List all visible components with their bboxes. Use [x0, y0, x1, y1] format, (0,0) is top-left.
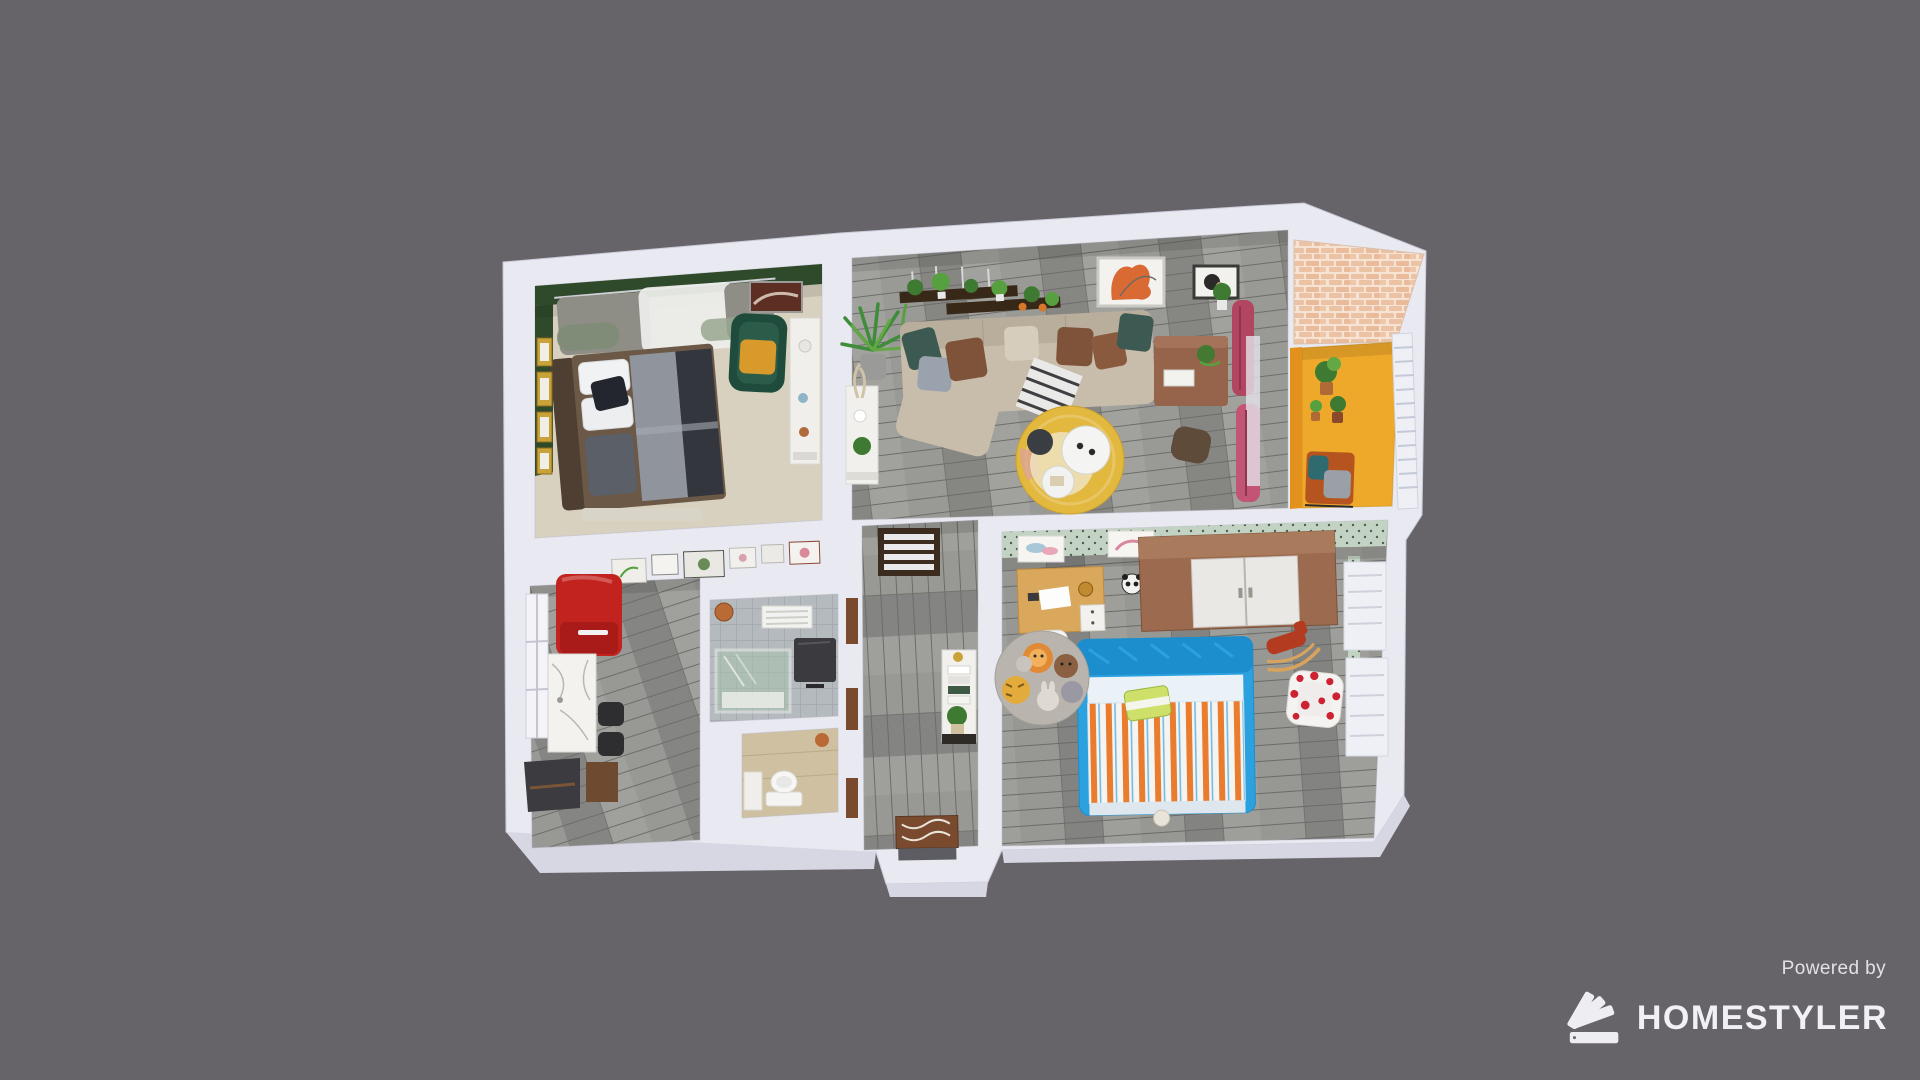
curtain-green-fold	[556, 322, 620, 352]
table-plant	[1197, 345, 1215, 363]
marble-counter	[548, 654, 596, 752]
shoe-cabinet	[878, 528, 940, 576]
living-room	[842, 230, 1288, 520]
green-armchair	[728, 313, 788, 394]
copper-pot-wc	[815, 733, 829, 747]
doorway-jamb-1	[846, 598, 858, 644]
kitchen-window	[526, 594, 548, 738]
round-yellow-rug	[1016, 406, 1124, 514]
wood-wardrobe	[1138, 531, 1337, 632]
bar-stool-2	[598, 732, 624, 756]
towel-rack	[762, 606, 812, 628]
dark-storage-unit	[794, 638, 836, 688]
brand-name: HOMESTYLER	[1637, 1001, 1888, 1035]
red-refrigerator	[556, 574, 622, 656]
wood-side-table	[1154, 336, 1228, 406]
pillow-brown-2	[1056, 327, 1094, 367]
pastel-wall-art-1	[1018, 536, 1064, 562]
pillow-brown-1	[944, 337, 988, 382]
bed-end-bench	[582, 508, 702, 521]
curtain-sheer	[638, 281, 738, 354]
heart-armchair	[1285, 669, 1344, 729]
door-threshold	[898, 848, 956, 861]
glass-shower	[716, 650, 790, 712]
kids-room	[995, 520, 1388, 846]
corner-plant	[1213, 283, 1231, 301]
vanity	[744, 772, 762, 810]
powered-by-text: Powered by	[1567, 958, 1886, 980]
doorway-jamb-2	[846, 688, 858, 730]
table-tray	[1050, 476, 1064, 486]
console-table-books	[942, 650, 976, 744]
dresser	[790, 318, 820, 464]
balcony	[1290, 240, 1424, 509]
panda-plush	[1122, 574, 1142, 594]
double-bed	[549, 343, 726, 513]
homestyler-watermark: Powered by HOMESTYLER	[1567, 958, 1888, 1046]
green-pillow	[1124, 685, 1172, 722]
kids-bed-blue	[1077, 636, 1256, 827]
pillow-gray-low	[584, 433, 637, 497]
copper-pot	[715, 603, 733, 621]
fridge-handle	[578, 630, 608, 635]
pillow-beige	[1004, 326, 1040, 362]
owl-toy	[1154, 810, 1170, 826]
pillow-teal-right	[1116, 313, 1154, 353]
hallway	[846, 520, 978, 861]
gray-blanket	[1323, 470, 1351, 499]
storage-closet	[524, 758, 580, 812]
desk-lamp	[1078, 582, 1092, 596]
floorplan-render	[0, 0, 1920, 1080]
white-panels	[1344, 562, 1388, 756]
shower-room	[710, 594, 838, 722]
corner-plant-pot	[1217, 300, 1227, 310]
animal-round-rug	[995, 631, 1089, 725]
wall-art-orange	[1098, 258, 1164, 306]
bedroom-wall-art	[750, 282, 802, 312]
entry-door[interactable]	[896, 815, 959, 860]
sheer-curtain	[1246, 336, 1260, 486]
bar-stool-1	[598, 702, 624, 726]
coffee-table-large	[1062, 426, 1110, 474]
bed-duvet	[1088, 701, 1246, 804]
doorway-jamb-3	[846, 778, 858, 818]
rug-bunny	[1037, 689, 1059, 711]
rug-tiger	[1002, 676, 1030, 704]
homestyler-swatch-fan-icon	[1567, 990, 1623, 1046]
rug-dark-decor	[1027, 429, 1053, 455]
master-bedroom	[535, 264, 822, 538]
wood-cabinet	[586, 762, 618, 802]
desk-paper	[1039, 586, 1071, 610]
desk-drawers	[1080, 604, 1105, 631]
console-plant	[947, 706, 967, 726]
rug-bear	[1054, 654, 1078, 678]
wall-base-shadow-door	[886, 882, 988, 897]
rug-koala	[1016, 656, 1032, 672]
books	[1164, 370, 1194, 386]
wc	[742, 728, 838, 818]
gold-wall-frames	[537, 338, 552, 474]
outdoor-bench	[1305, 451, 1355, 507]
render-stage: Powered by HOMESTYLER	[0, 0, 1920, 1080]
yellow-cushion	[739, 339, 777, 375]
balcony-wall-yellow	[1290, 347, 1302, 509]
console-plant	[853, 437, 871, 455]
rug-elephant	[1061, 681, 1083, 703]
